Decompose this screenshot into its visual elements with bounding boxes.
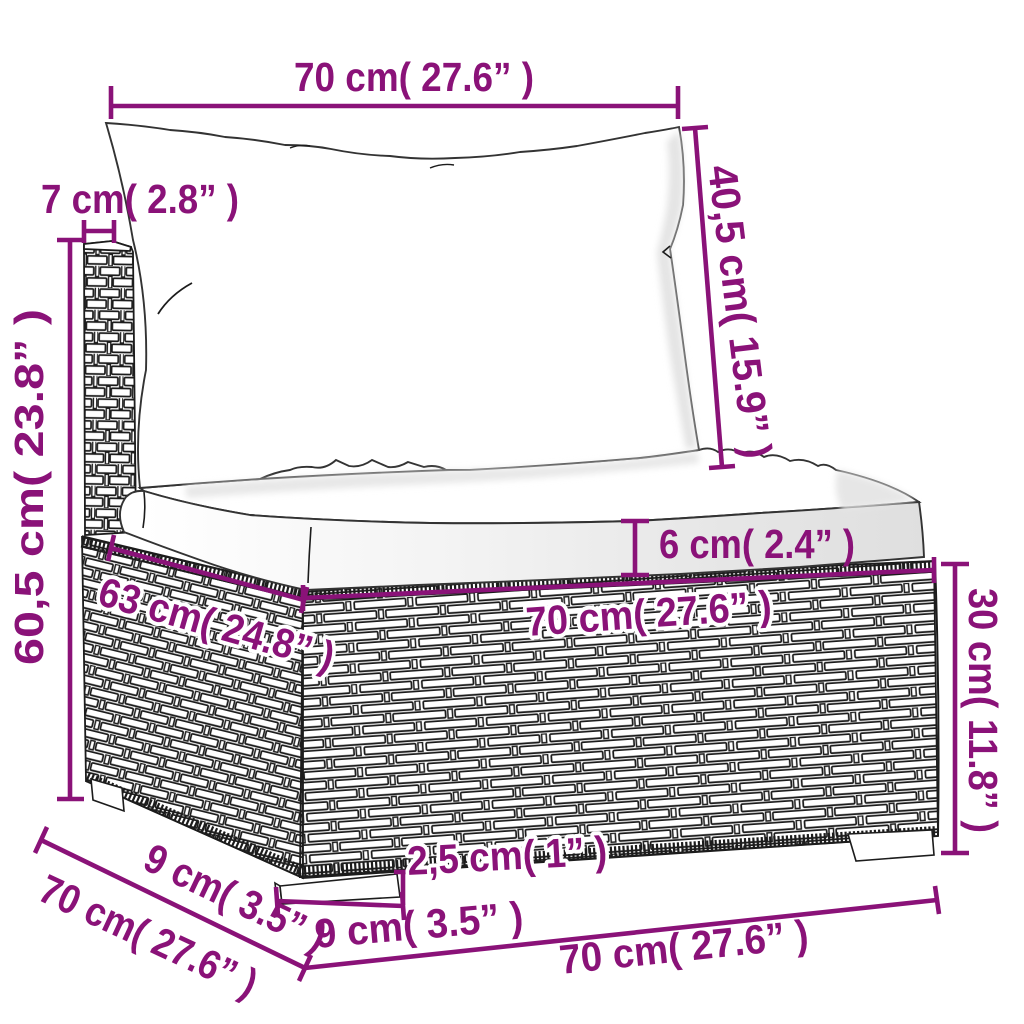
svg-text:6 cm( 2.4” ): 6 cm( 2.4” ) [659, 521, 855, 567]
svg-text:70 cm( 27.6” ): 70 cm( 27.6” ) [294, 54, 534, 100]
svg-text:30 cm( 11.8” ): 30 cm( 11.8” ) [960, 588, 1006, 833]
svg-text:60,5 cm( 23.8” ): 60,5 cm( 23.8” ) [6, 309, 52, 665]
svg-text:7 cm( 2.8” ): 7 cm( 2.8” ) [41, 176, 239, 222]
